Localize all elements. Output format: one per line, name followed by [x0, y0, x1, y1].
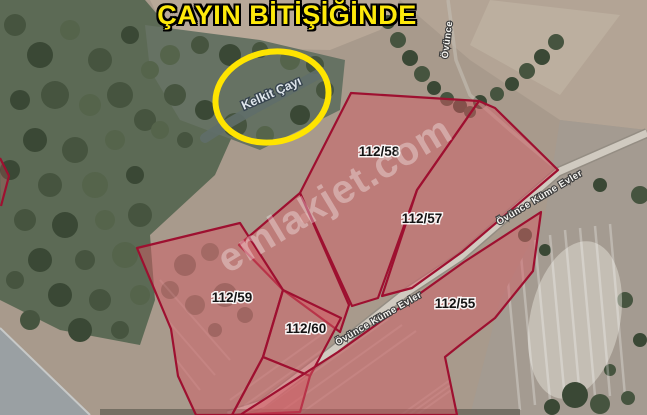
parcel-label-112-59: 112/59 — [212, 290, 253, 305]
parcel-label-112-58: 112/58 — [359, 144, 400, 159]
listing-headline: ÇAYIN BİTİŞİĞİNDE — [157, 0, 417, 31]
parcel-label-112-57: 112/57 — [402, 211, 443, 226]
listing-image: 112/58 112/57 112/59 112/60 112/55 Övünc… — [0, 0, 647, 415]
parcel-label-112-55: 112/55 — [435, 296, 476, 311]
parcel-label-112-60: 112/60 — [286, 321, 327, 336]
satellite-map: 112/58 112/57 112/59 112/60 112/55 Övünc… — [0, 0, 647, 415]
